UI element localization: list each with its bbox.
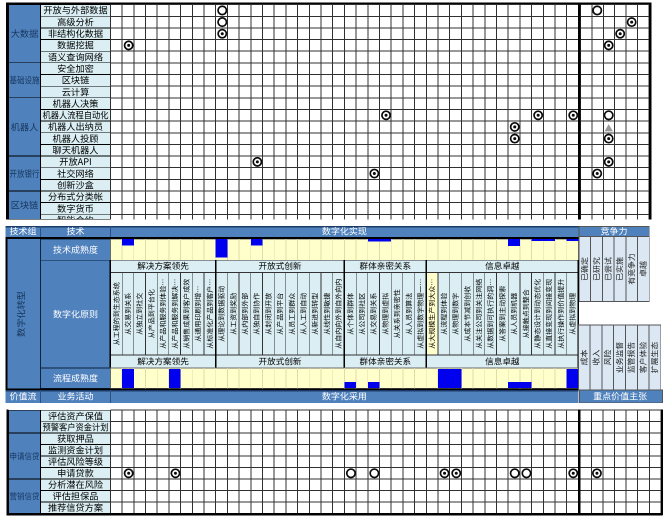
- svg-text:从公司到社区: 从公司到社区: [357, 293, 367, 335]
- svg-text:数字化实现: 数字化实现: [322, 225, 367, 238]
- svg-text:从通用印刷到增…: 从通用印刷到增…: [194, 286, 204, 342]
- svg-text:从员工到群众: 从员工到群众: [287, 293, 297, 335]
- svg-text:从线性到敏捷: 从线性到敏捷: [322, 293, 332, 335]
- svg-text:从成本节减到创收: 从成本节减到创收: [463, 286, 473, 342]
- svg-text:从答案到主动探索: 从答案到主动探索: [498, 286, 508, 342]
- svg-text:业务监督: 业务监督: [614, 342, 625, 374]
- svg-text:从理论到数据驱动: 从理论到数据驱动: [217, 286, 227, 342]
- svg-text:从大规模生产到大众…: 从大规模生产到大众…: [428, 279, 438, 349]
- svg-text:从销售成果到客户成效: 从销售成果到客户成效: [182, 279, 192, 349]
- svg-text:成本: 成本: [579, 350, 590, 366]
- svg-text:信息卓越: 信息卓越: [485, 260, 520, 272]
- svg-text:已实施: 已实施: [615, 257, 626, 281]
- svg-text:已研究: 已研究: [591, 257, 602, 281]
- svg-text:群体亲密关系: 群体亲密关系: [360, 260, 412, 272]
- svg-text:信息卓越: 信息卓越: [485, 356, 520, 368]
- svg-text:数字化转型: 数字化转型: [14, 291, 28, 337]
- svg-text:从接触点到整合: 从接触点到整合: [521, 289, 531, 338]
- svg-text:从虚拟到数字物理一…: 从虚拟到数字物理一…: [416, 279, 426, 349]
- svg-text:大数据: 大数据: [11, 26, 39, 40]
- svg-text:从标准化产品到客户…: 从标准化产品到客户…: [205, 279, 215, 349]
- svg-text:从自内向外到自外向内: 从自内向外到自外向内: [334, 279, 344, 349]
- svg-text:收入: 收入: [591, 350, 602, 366]
- svg-text:从人工到自动: 从人工到自动: [299, 293, 309, 335]
- svg-text:重点价值主张: 重点价值主张: [593, 390, 647, 403]
- svg-text:从工程的到生态系统: 从工程的到生态系统: [112, 282, 122, 345]
- svg-text:数字化采用: 数字化采用: [322, 390, 367, 403]
- svg-text:从虚拟到物理: 从虚拟到物理: [568, 293, 578, 335]
- svg-text:营销信贷: 营销信贷: [10, 490, 40, 503]
- svg-text:从封闭到开放: 从封闭到开放: [264, 293, 274, 335]
- svg-text:推荐信贷方案: 推荐信贷方案: [48, 500, 103, 514]
- svg-text:从物理到数字: 从物理到数字: [451, 293, 461, 335]
- svg-text:从产品到平台化: 从产品到平台化: [147, 289, 157, 338]
- svg-text:从独立到社交: 从独立到社交: [135, 293, 145, 335]
- svg-text:从人员到机器: 从人员到机器: [510, 293, 520, 335]
- svg-text:技术组: 技术组: [10, 225, 37, 238]
- svg-text:机器人: 机器人: [11, 119, 39, 133]
- svg-text:已尝试: 已尝试: [603, 257, 614, 281]
- svg-text:有竞争力: 有竞争力: [626, 253, 637, 285]
- svg-text:申请信贷: 申请信贷: [10, 449, 40, 462]
- svg-text:从产品和服务到体验…: 从产品和服务到体验…: [159, 279, 169, 349]
- svg-text:数字化原则: 数字化原则: [53, 308, 98, 321]
- svg-text:已确定: 已确定: [580, 257, 591, 281]
- svg-text:风险: 风险: [603, 350, 614, 366]
- svg-text:从静态设计到动态优化: 从静态设计到动态优化: [533, 279, 543, 349]
- svg-text:从人员到算法: 从人员到算法: [404, 293, 414, 335]
- svg-text:解决方案领先: 解决方案领先: [137, 356, 189, 368]
- svg-text:监管报告: 监管报告: [626, 342, 637, 374]
- svg-text:开放式创新: 开放式创新: [259, 260, 302, 272]
- svg-text:从物理到虚拟: 从物理到虚拟: [381, 293, 391, 335]
- svg-text:客户体验: 客户体验: [638, 342, 649, 374]
- svg-text:扩展生态: 扩展生态: [650, 342, 661, 374]
- svg-text:从交易到关系: 从交易到关系: [369, 293, 379, 335]
- svg-text:从直接变现到间接变现: 从直接变现到间接变现: [545, 279, 555, 349]
- svg-text:流程成熟度: 流程成熟度: [53, 372, 98, 385]
- svg-text:卓越: 卓越: [638, 261, 649, 277]
- svg-text:开放银行: 开放银行: [10, 166, 40, 180]
- svg-text:从产品和服务到解决…: 从产品和服务到解决…: [170, 279, 180, 349]
- svg-text:业务活动: 业务活动: [57, 390, 93, 403]
- svg-text:开放式创新: 开放式创新: [259, 356, 302, 368]
- svg-text:区块链: 区块链: [11, 198, 39, 212]
- svg-text:竞争力: 竞争力: [601, 225, 628, 238]
- svg-text:从新进到转型: 从新进到转型: [311, 293, 321, 335]
- svg-text:从数据到可执行的洞…: 从数据到可执行的洞…: [486, 279, 496, 349]
- svg-text:技术: 技术: [66, 225, 84, 238]
- svg-text:解决方案领先: 解决方案领先: [137, 260, 189, 272]
- svg-text:从独自到协作: 从独自到协作: [252, 293, 262, 335]
- svg-text:从交易到关系: 从交易到关系: [123, 293, 133, 335]
- svg-text:从流程到体验: 从流程到体验: [439, 293, 449, 335]
- svg-text:从执行操作到价值提升: 从执行操作到价值提升: [556, 279, 566, 349]
- svg-text:群体亲密关系: 群体亲密关系: [360, 356, 412, 368]
- svg-text:从工资到奖励: 从工资到奖励: [229, 293, 239, 335]
- svg-text:从个体到群体: 从个体到群体: [346, 293, 356, 335]
- svg-text:基础设施: 基础设施: [10, 73, 40, 87]
- svg-text:从产品到平台: 从产品到平台: [276, 293, 286, 335]
- svg-text:价值流: 价值流: [10, 390, 37, 403]
- svg-text:从内部到外部: 从内部到外部: [240, 293, 250, 335]
- svg-text:从关系到亲密性: 从关系到亲密性: [393, 289, 403, 338]
- svg-text:技术成熟度: 技术成熟度: [53, 243, 98, 256]
- svg-text:从关注公司到关注网络: 从关注公司到关注网络: [474, 279, 484, 349]
